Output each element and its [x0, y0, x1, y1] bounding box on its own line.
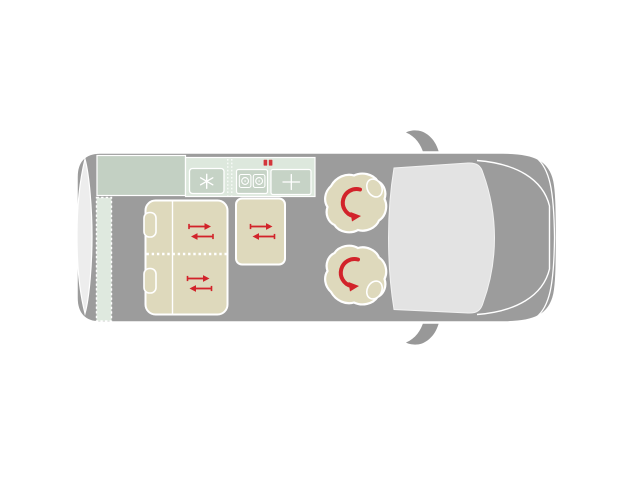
swivel-seat-rear — [325, 174, 386, 233]
bed-platform — [146, 201, 228, 315]
side-seat — [236, 199, 285, 265]
campervan-top-view — [0, 0, 640, 480]
swivel-seat-front — [325, 246, 386, 305]
bed-hinge-tab-top — [144, 213, 156, 238]
side-seat-cushion — [236, 199, 285, 265]
rear-shelf — [97, 198, 112, 322]
windshield — [389, 163, 495, 313]
bench-bed — [144, 201, 228, 315]
bed-hinge-tab-bottom — [144, 269, 156, 294]
kitchen-counter — [97, 156, 186, 196]
floorplan-canvas — [0, 0, 640, 480]
